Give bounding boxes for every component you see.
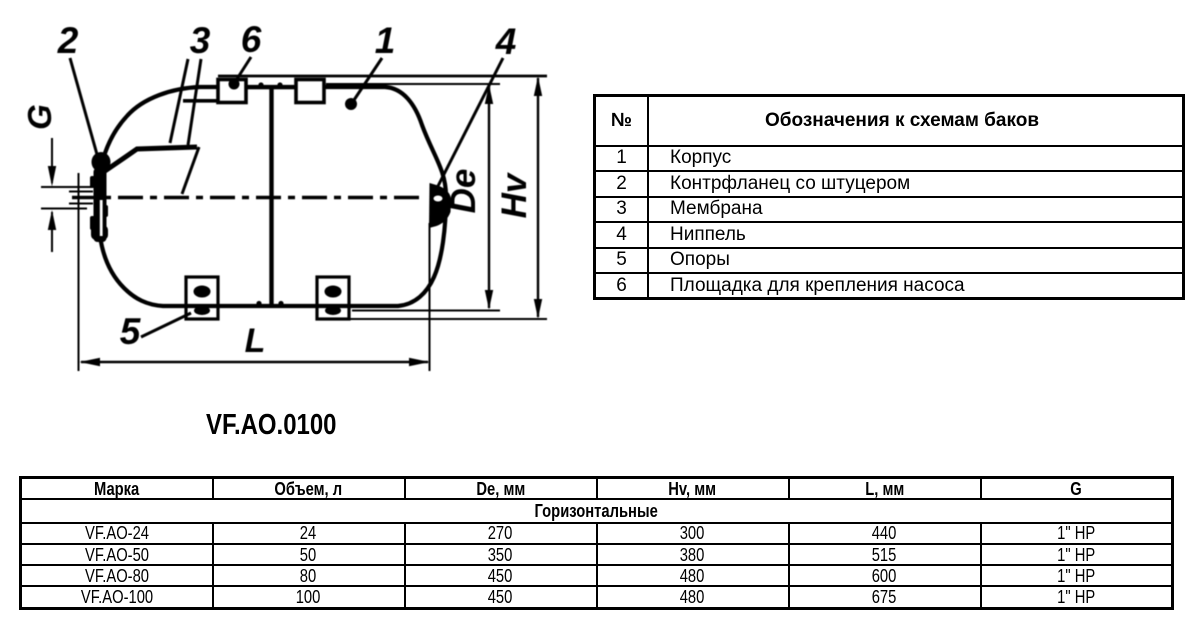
svg-text:De: De [444, 169, 483, 214]
svg-text:3: 3 [190, 20, 211, 61]
svg-text:6: 6 [241, 19, 262, 60]
svg-text:L: L [245, 322, 266, 360]
svg-text:5: 5 [120, 311, 142, 352]
svg-text:4: 4 [495, 21, 517, 62]
svg-text:G: G [21, 104, 58, 130]
svg-text:1: 1 [375, 20, 396, 61]
svg-text:2: 2 [57, 20, 79, 61]
svg-text:Hv: Hv [495, 171, 534, 218]
